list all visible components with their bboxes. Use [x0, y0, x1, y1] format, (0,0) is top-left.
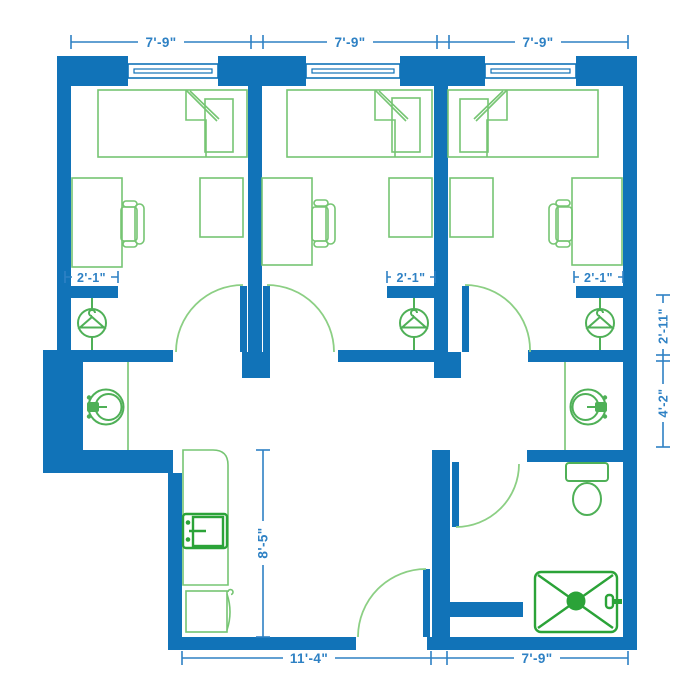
side-table-icon: [450, 178, 493, 237]
desk-icon: [72, 178, 122, 267]
desk-chair-icon: [312, 200, 335, 247]
door-leaf: [452, 462, 459, 527]
bathroom-wall: [527, 450, 623, 462]
partition-wall: [434, 86, 448, 353]
closet-wall: [57, 286, 118, 298]
kitchen-sink-icon: [183, 514, 227, 548]
left-exterior-wall: [57, 56, 71, 352]
closet-wall: [576, 286, 623, 298]
door-swing-icon: [176, 285, 243, 352]
desk-chair-icon: [549, 200, 572, 247]
door-leaf: [263, 286, 270, 352]
dimension-label: 4'-2": [657, 389, 671, 418]
windows: [128, 64, 576, 78]
kitchen: [183, 450, 233, 632]
left-vanity: [87, 362, 128, 450]
shower-icon: [535, 572, 622, 632]
desk-icon: [262, 178, 312, 265]
dimension-label: 11'-4": [290, 651, 328, 666]
vanity-wall: [43, 450, 173, 473]
dimension-label: 8'-5": [256, 527, 271, 558]
dimension-bottom: 11'-4" 7'-9": [182, 650, 628, 666]
side-table-icon: [389, 178, 432, 237]
wall-pier: [218, 56, 306, 86]
dimension-closet-1: 2'-1": [65, 270, 118, 285]
dimension-label: 7'-9": [522, 35, 553, 50]
window-icon: [485, 64, 576, 78]
window-icon: [306, 64, 400, 78]
bedroom-2: [262, 90, 432, 352]
bed-icon: [98, 90, 247, 157]
pillow-icon: [460, 99, 488, 152]
bed-icon: [287, 90, 432, 157]
bedroom-wall: [338, 350, 434, 362]
refrigerator-icon: [186, 590, 233, 632]
bottom-exterior-wall: [168, 637, 356, 650]
door-leaf: [423, 569, 430, 637]
dimension-label: 7'-9": [334, 35, 365, 50]
dimension-kitchen: 8'-5": [255, 450, 271, 637]
dimension-label: 7'-9": [521, 651, 552, 666]
walls: [43, 56, 637, 650]
vanity-wall: [43, 350, 83, 462]
floor-plan-drawing: 7'-9" 7'-9" 7'-9" 2'-1" 2'-1" 2'-1": [0, 0, 700, 700]
right-exterior-wall: [623, 56, 637, 650]
shower-head-icon: [606, 595, 622, 608]
window-icon: [128, 64, 218, 78]
dimension-label: 2'-1": [77, 271, 106, 285]
dimension-closet-3: 2'-1": [574, 270, 623, 285]
entry-door-swing-icon: [358, 569, 426, 637]
partition-wall: [248, 86, 262, 353]
dimension-right-side: 2'-11" 4'-2": [655, 295, 671, 447]
kitchen-wall: [168, 473, 182, 650]
toilet-icon: [566, 463, 608, 515]
door-swing-icon: [267, 285, 334, 352]
dimension-closet-2: 2'-1": [387, 270, 435, 285]
right-vanity: [565, 362, 607, 450]
hanger-icon: [78, 309, 106, 337]
door-leaf: [240, 286, 247, 352]
bedroom-3: [448, 90, 622, 352]
dimension-label: 2'-1": [584, 271, 613, 285]
bottom-exterior-wall: [427, 637, 637, 650]
door-swing-icon: [456, 464, 519, 527]
pillow-icon: [205, 99, 233, 152]
closet: [586, 298, 614, 350]
desk-chair-icon: [121, 201, 144, 247]
hanger-icon: [586, 309, 614, 337]
bathroom-wall: [432, 450, 450, 650]
bedroom-wall: [528, 350, 623, 362]
dimension-top: 7'-9" 7'-9" 7'-9": [71, 34, 628, 50]
closet-wall: [387, 286, 434, 298]
hall-pier: [242, 352, 270, 378]
dimension-label: 7'-9": [145, 35, 176, 50]
bathroom-stub-wall: [432, 602, 523, 617]
vanity-sink-icon: [87, 390, 124, 425]
door-swing-icon: [465, 285, 530, 352]
closet: [400, 298, 428, 350]
floor-plan-canvas: 7'-9" 7'-9" 7'-9" 2'-1" 2'-1" 2'-1": [0, 0, 700, 700]
side-table-icon: [200, 178, 243, 237]
closet: [78, 298, 106, 350]
pillow-icon: [392, 98, 420, 152]
wall-pier: [400, 56, 485, 86]
bedroom-wall: [83, 350, 173, 362]
dimension-label: 2'-1": [397, 271, 426, 285]
bed-icon: [448, 90, 598, 157]
door-leaf: [462, 286, 469, 352]
hall-pier: [434, 352, 461, 378]
dimension-label: 2'-11": [657, 308, 671, 344]
desk-icon: [572, 178, 622, 265]
vanity-sink-icon: [571, 390, 608, 425]
shower-drain-icon: [567, 592, 586, 611]
hanger-icon: [400, 309, 428, 337]
bedroom-1: [72, 90, 247, 352]
